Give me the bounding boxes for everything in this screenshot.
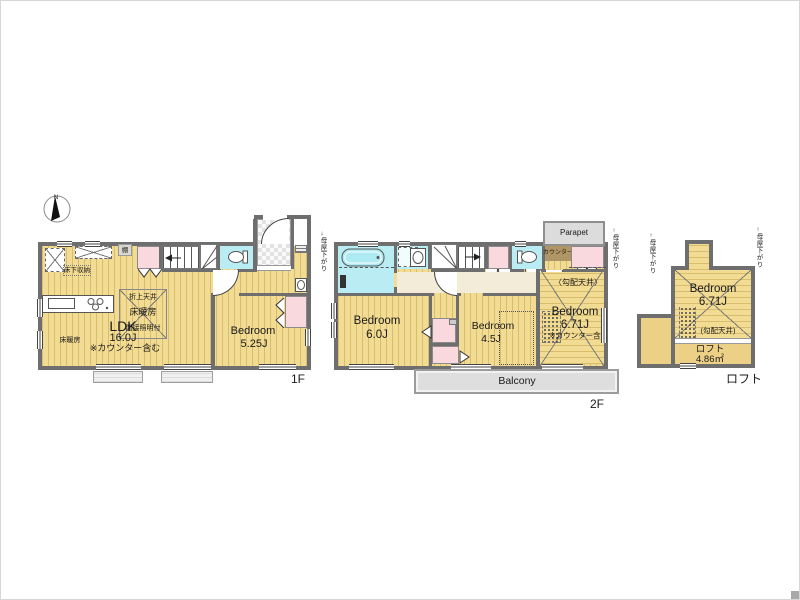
wall (237, 269, 257, 272)
wall (338, 293, 434, 296)
storage-symbol-1f-a (45, 248, 65, 272)
folding-door-icon (275, 298, 285, 328)
window (680, 363, 696, 369)
moya-sagari-left-loft: ↑ 母屋下がり (646, 232, 656, 274)
outdoor-step (93, 371, 143, 383)
wall (483, 293, 542, 296)
window (399, 241, 410, 247)
floor-heating-left-label: 床暖房 (60, 337, 81, 345)
bathtub-icon (341, 248, 385, 267)
arrow-up-icon: ↑ (612, 227, 615, 234)
stairs-winder-1f (200, 244, 217, 269)
room-bedroom60-name: Bedroom (354, 315, 401, 328)
room-bedroom45-size: 4.5J (481, 333, 501, 345)
loft-ladder-symbol (679, 307, 696, 338)
closet-2f-hall (488, 246, 509, 269)
closet-bedroom-1f (285, 296, 307, 328)
window (601, 308, 607, 343)
compass-icon: N (41, 191, 73, 225)
kitchen-sink (48, 298, 75, 309)
wall (394, 246, 397, 273)
toilet-icon (227, 249, 249, 265)
moya-sagari-label: 母屋下がり (317, 237, 327, 272)
closet-2f-corner (571, 246, 604, 268)
arrow-up-icon: ↑ (756, 226, 759, 233)
stove-icon (85, 297, 111, 311)
window (515, 241, 526, 247)
room-bedroom671-name: Bedroom (552, 306, 599, 319)
closet-badge (449, 319, 457, 325)
entry-step (257, 265, 291, 271)
moya-sagari-label: 母屋下がり (753, 233, 763, 268)
washer-tap-icon (340, 275, 346, 288)
floor-label-2f: 2F (590, 398, 604, 412)
window (358, 241, 378, 247)
compass-north-label: N (54, 195, 58, 201)
hand-basin-icon (295, 278, 307, 292)
hallway-2f (397, 272, 536, 293)
window (57, 241, 72, 247)
loft-space-size: 4.86㎡ (696, 355, 724, 366)
floor-label-1f: 1F (291, 373, 305, 387)
shelf-label: 棚 (122, 247, 129, 254)
underfloor-storage-label: 床下収納 (63, 265, 91, 276)
window (164, 364, 211, 370)
stairs-winder-2f (431, 244, 457, 269)
window (259, 364, 296, 370)
vanity-sink-icon (410, 248, 426, 267)
sloped-ceiling-label-2f: 〈勾配天井〉 (554, 278, 602, 287)
room-loft-bedroom-name: Bedroom (690, 283, 737, 296)
window (85, 241, 100, 247)
stairs-arrow-icon (165, 254, 181, 262)
window (37, 299, 43, 317)
storage-symbol-1f-b (75, 246, 112, 259)
floor-plan-canvas: N 床下収納 棚 (0, 0, 800, 600)
loft-dormer (685, 240, 713, 270)
window (37, 331, 43, 349)
room-bedroom45-name: Bedroom (472, 320, 515, 332)
arrow-down-icon: ↓ (320, 230, 323, 237)
moya-sagari-right-2f: ↑ 母屋下がり (609, 227, 619, 269)
parapet-label: Parapet (560, 228, 588, 237)
moya-sagari-right-loft: ↑ 母屋下がり (753, 226, 763, 268)
counter-label: カウンター (543, 250, 573, 257)
wall (211, 293, 215, 366)
moya-sagari-label: 母屋下がり (646, 239, 656, 274)
window (331, 303, 337, 319)
sloped-ceiling-boundary (339, 267, 394, 268)
floor-label-loft: ロフト (726, 373, 762, 387)
room-bedroom671-note: ※カウンター含 (549, 332, 600, 341)
window (96, 364, 141, 370)
window (305, 329, 311, 346)
toilet-icon (516, 249, 538, 265)
outdoor-step (161, 371, 213, 383)
corner-mark (791, 591, 800, 600)
window (349, 364, 394, 370)
arrow-up-icon: ↑ (649, 232, 652, 239)
room-bedroom525-size: 5.25J (241, 338, 268, 351)
closet-door-icon (421, 325, 432, 339)
shoe-shelf-icon (295, 245, 307, 253)
floor-heating-label: 床暖房 (129, 307, 156, 317)
moya-sagari-left-2f: ↓ 母屋下がり (317, 230, 327, 272)
folding-door-icon (138, 268, 163, 278)
room-bedroom60-size: 6.0J (366, 329, 388, 342)
stairs-arrow-icon (465, 253, 481, 261)
wall (291, 219, 294, 269)
balcony-label: Balcony (498, 375, 535, 387)
window (331, 322, 337, 338)
closet-door-icon (459, 350, 470, 364)
moya-sagari-label: 母屋下がり (609, 234, 619, 269)
coffered-ceiling-label: 折上天井 (129, 294, 157, 302)
room-loft-bedroom-size: 6.71J (699, 296, 727, 309)
room-bedroom525-name: Bedroom (231, 325, 276, 338)
room-ldk-note: ※カウンター含む (90, 343, 161, 353)
sloped-ceiling-label-loft: (勾配天井) (701, 327, 736, 336)
closet-2f-middle-lower (432, 346, 459, 364)
